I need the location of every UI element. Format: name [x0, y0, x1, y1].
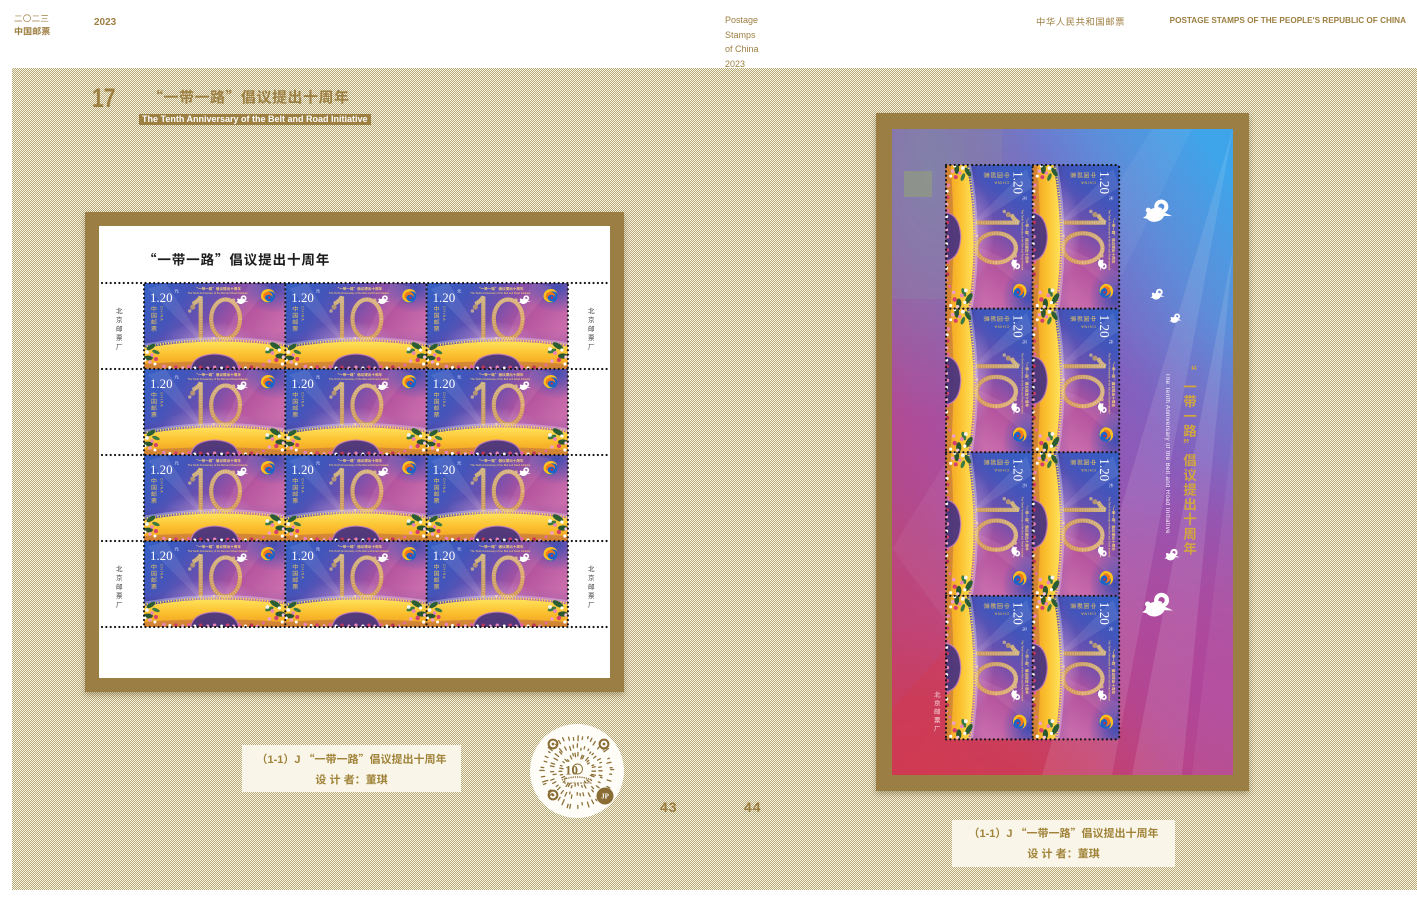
svg-text:北京邮票厂: 北京邮票厂 — [588, 307, 595, 351]
svg-text:北京邮票厂: 北京邮票厂 — [116, 307, 123, 351]
svg-text:The Tenth Anniversary of the B: The Tenth Anniversary of the Belt and Ro… — [1164, 373, 1170, 534]
svg-text:北京邮票厂: 北京邮票厂 — [588, 565, 595, 609]
svg-text:10: 10 — [565, 763, 578, 778]
svg-text:北京邮票厂: 北京邮票厂 — [116, 565, 123, 609]
svg-text:JP: JP — [601, 793, 610, 801]
